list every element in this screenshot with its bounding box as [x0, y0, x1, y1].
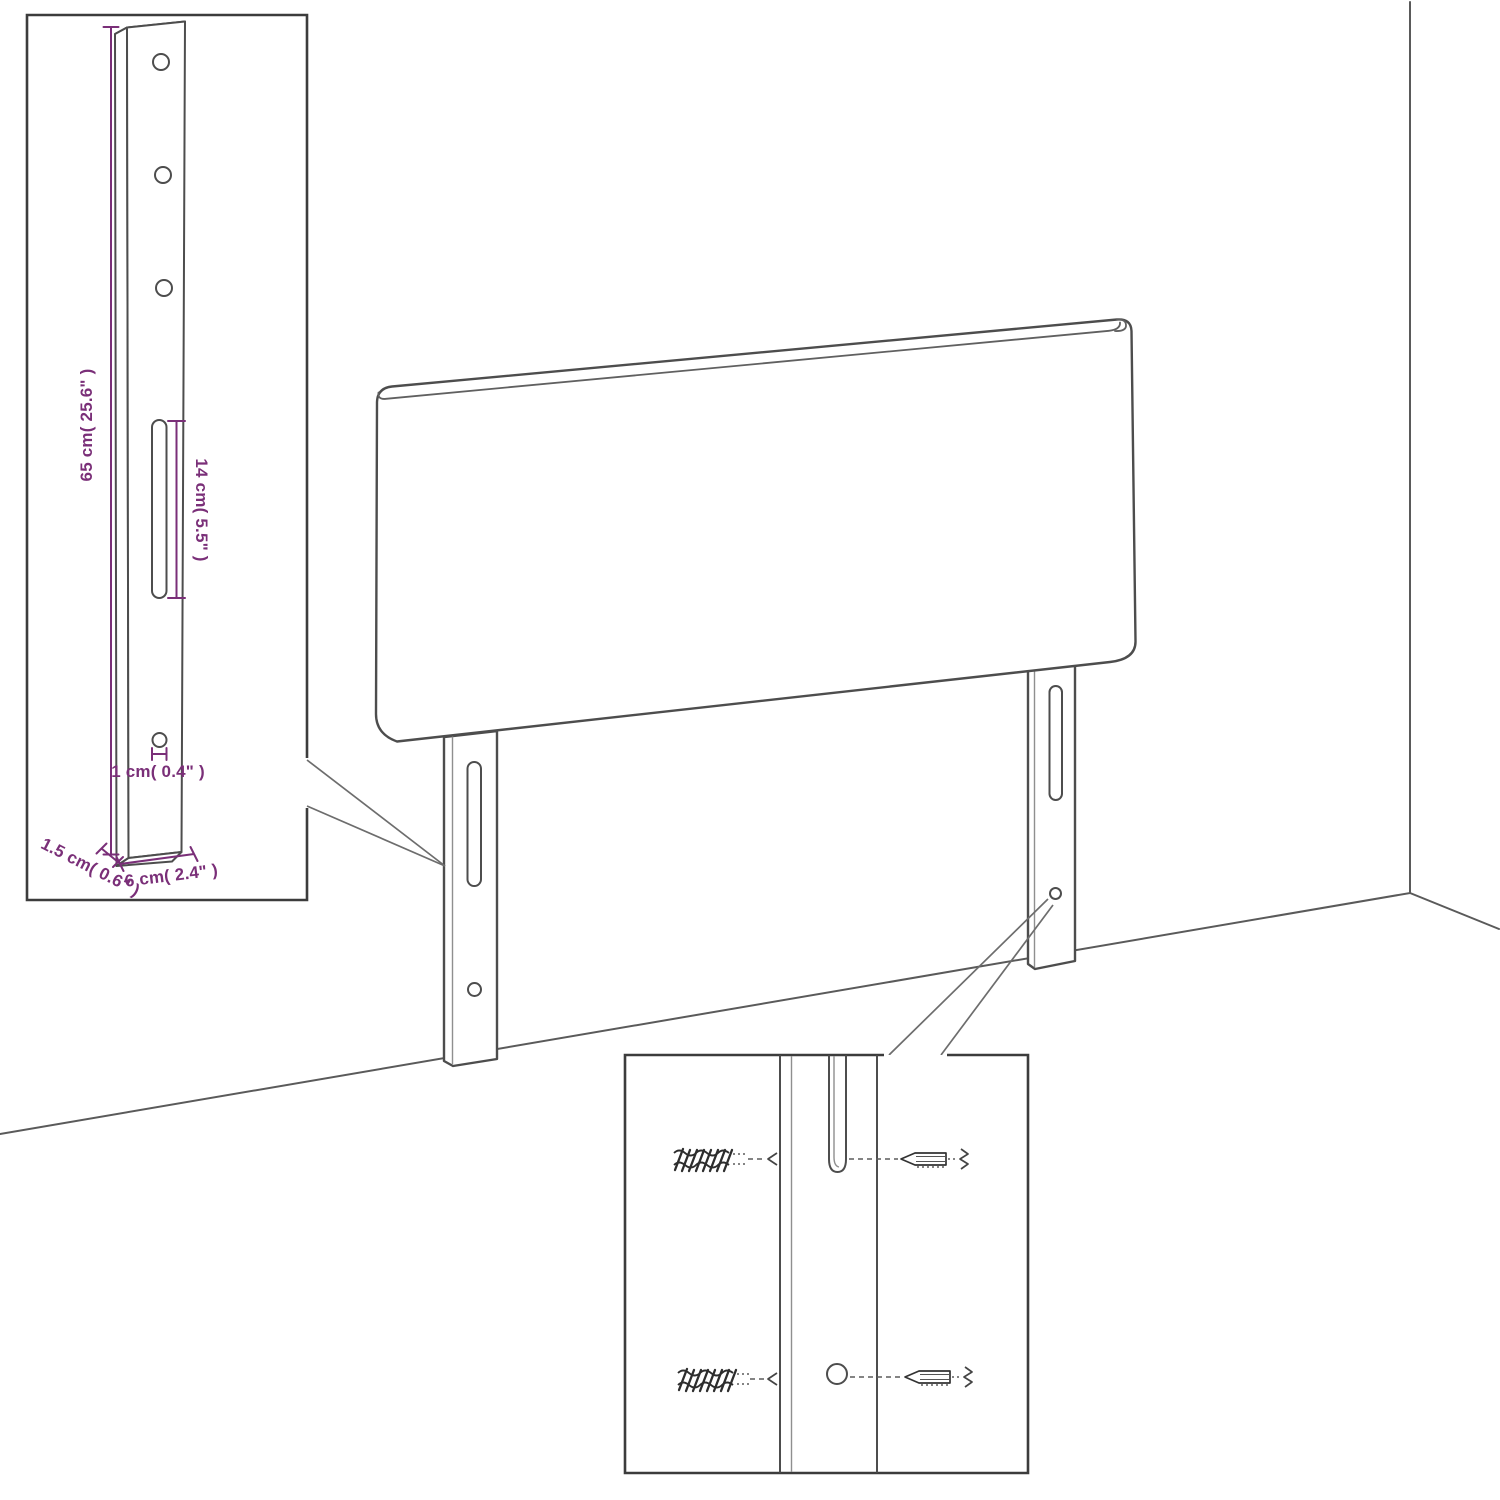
leader-to-bottom-detail-right: [941, 905, 1053, 1055]
detail-leg-hole-1: [153, 54, 169, 70]
detail-inset-mounting: [625, 1055, 1028, 1473]
left-leg-slot: [468, 762, 482, 886]
left-leg: [444, 731, 497, 1066]
leader-to-left-leg-lower: [307, 806, 445, 866]
leader-to-left-leg-upper: [307, 760, 445, 866]
product-diagram: 65 cm( 25.6" ) 14 cm( 5.5" ) 1 cm( 0.4" …: [0, 0, 1500, 1500]
dim-height-label: 65 cm( 25.6" ): [77, 369, 96, 482]
detail-leg-hole-2: [155, 167, 171, 183]
right-leg: [1028, 662, 1075, 969]
detail-inset-leg: 65 cm( 25.6" ) 14 cm( 5.5" ) 1 cm( 0.4" …: [27, 15, 307, 900]
headboard: [376, 319, 1136, 1066]
detail-mounting-bg: [625, 1055, 1028, 1473]
right-leg-slot: [1050, 686, 1063, 800]
detail-leg-drawing: [115, 22, 185, 867]
left-leg-hole: [468, 983, 481, 996]
detail-leg-bottom-hole: [153, 733, 167, 747]
callout-lines: [307, 760, 1053, 1055]
headboard-panel: [376, 319, 1136, 741]
dim-slot-label: 14 cm( 5.5" ): [192, 458, 211, 561]
detail-leg-slot: [152, 420, 167, 598]
dim-hole-label: 1 cm( 0.4" ): [111, 762, 205, 781]
right-leg-hole: [1050, 888, 1061, 899]
detail-leg-hole-3: [156, 280, 172, 296]
diagram-canvas: 65 cm( 25.6" ) 14 cm( 5.5" ) 1 cm( 0.4" …: [0, 0, 1500, 1500]
